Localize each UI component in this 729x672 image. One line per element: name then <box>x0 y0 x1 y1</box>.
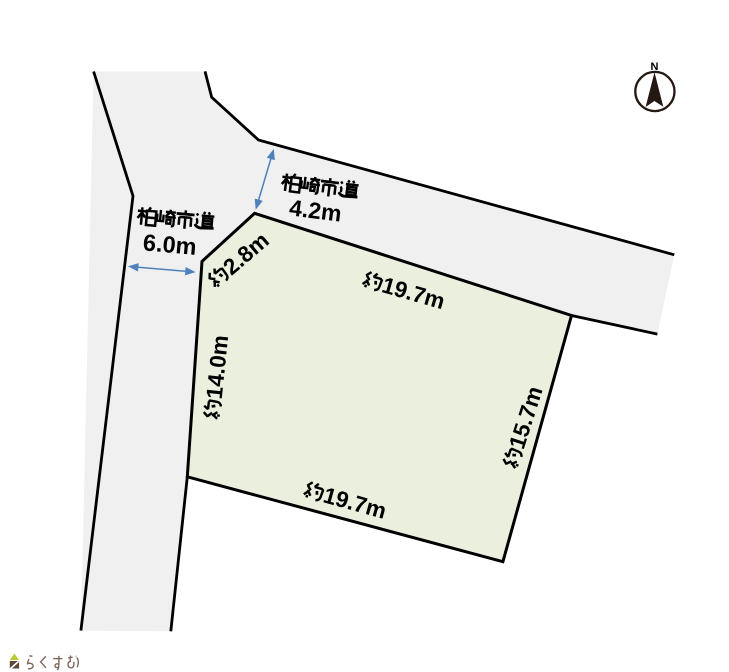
svg-text:6.0m: 6.0m <box>142 229 198 260</box>
svg-text:N: N <box>651 61 659 73</box>
